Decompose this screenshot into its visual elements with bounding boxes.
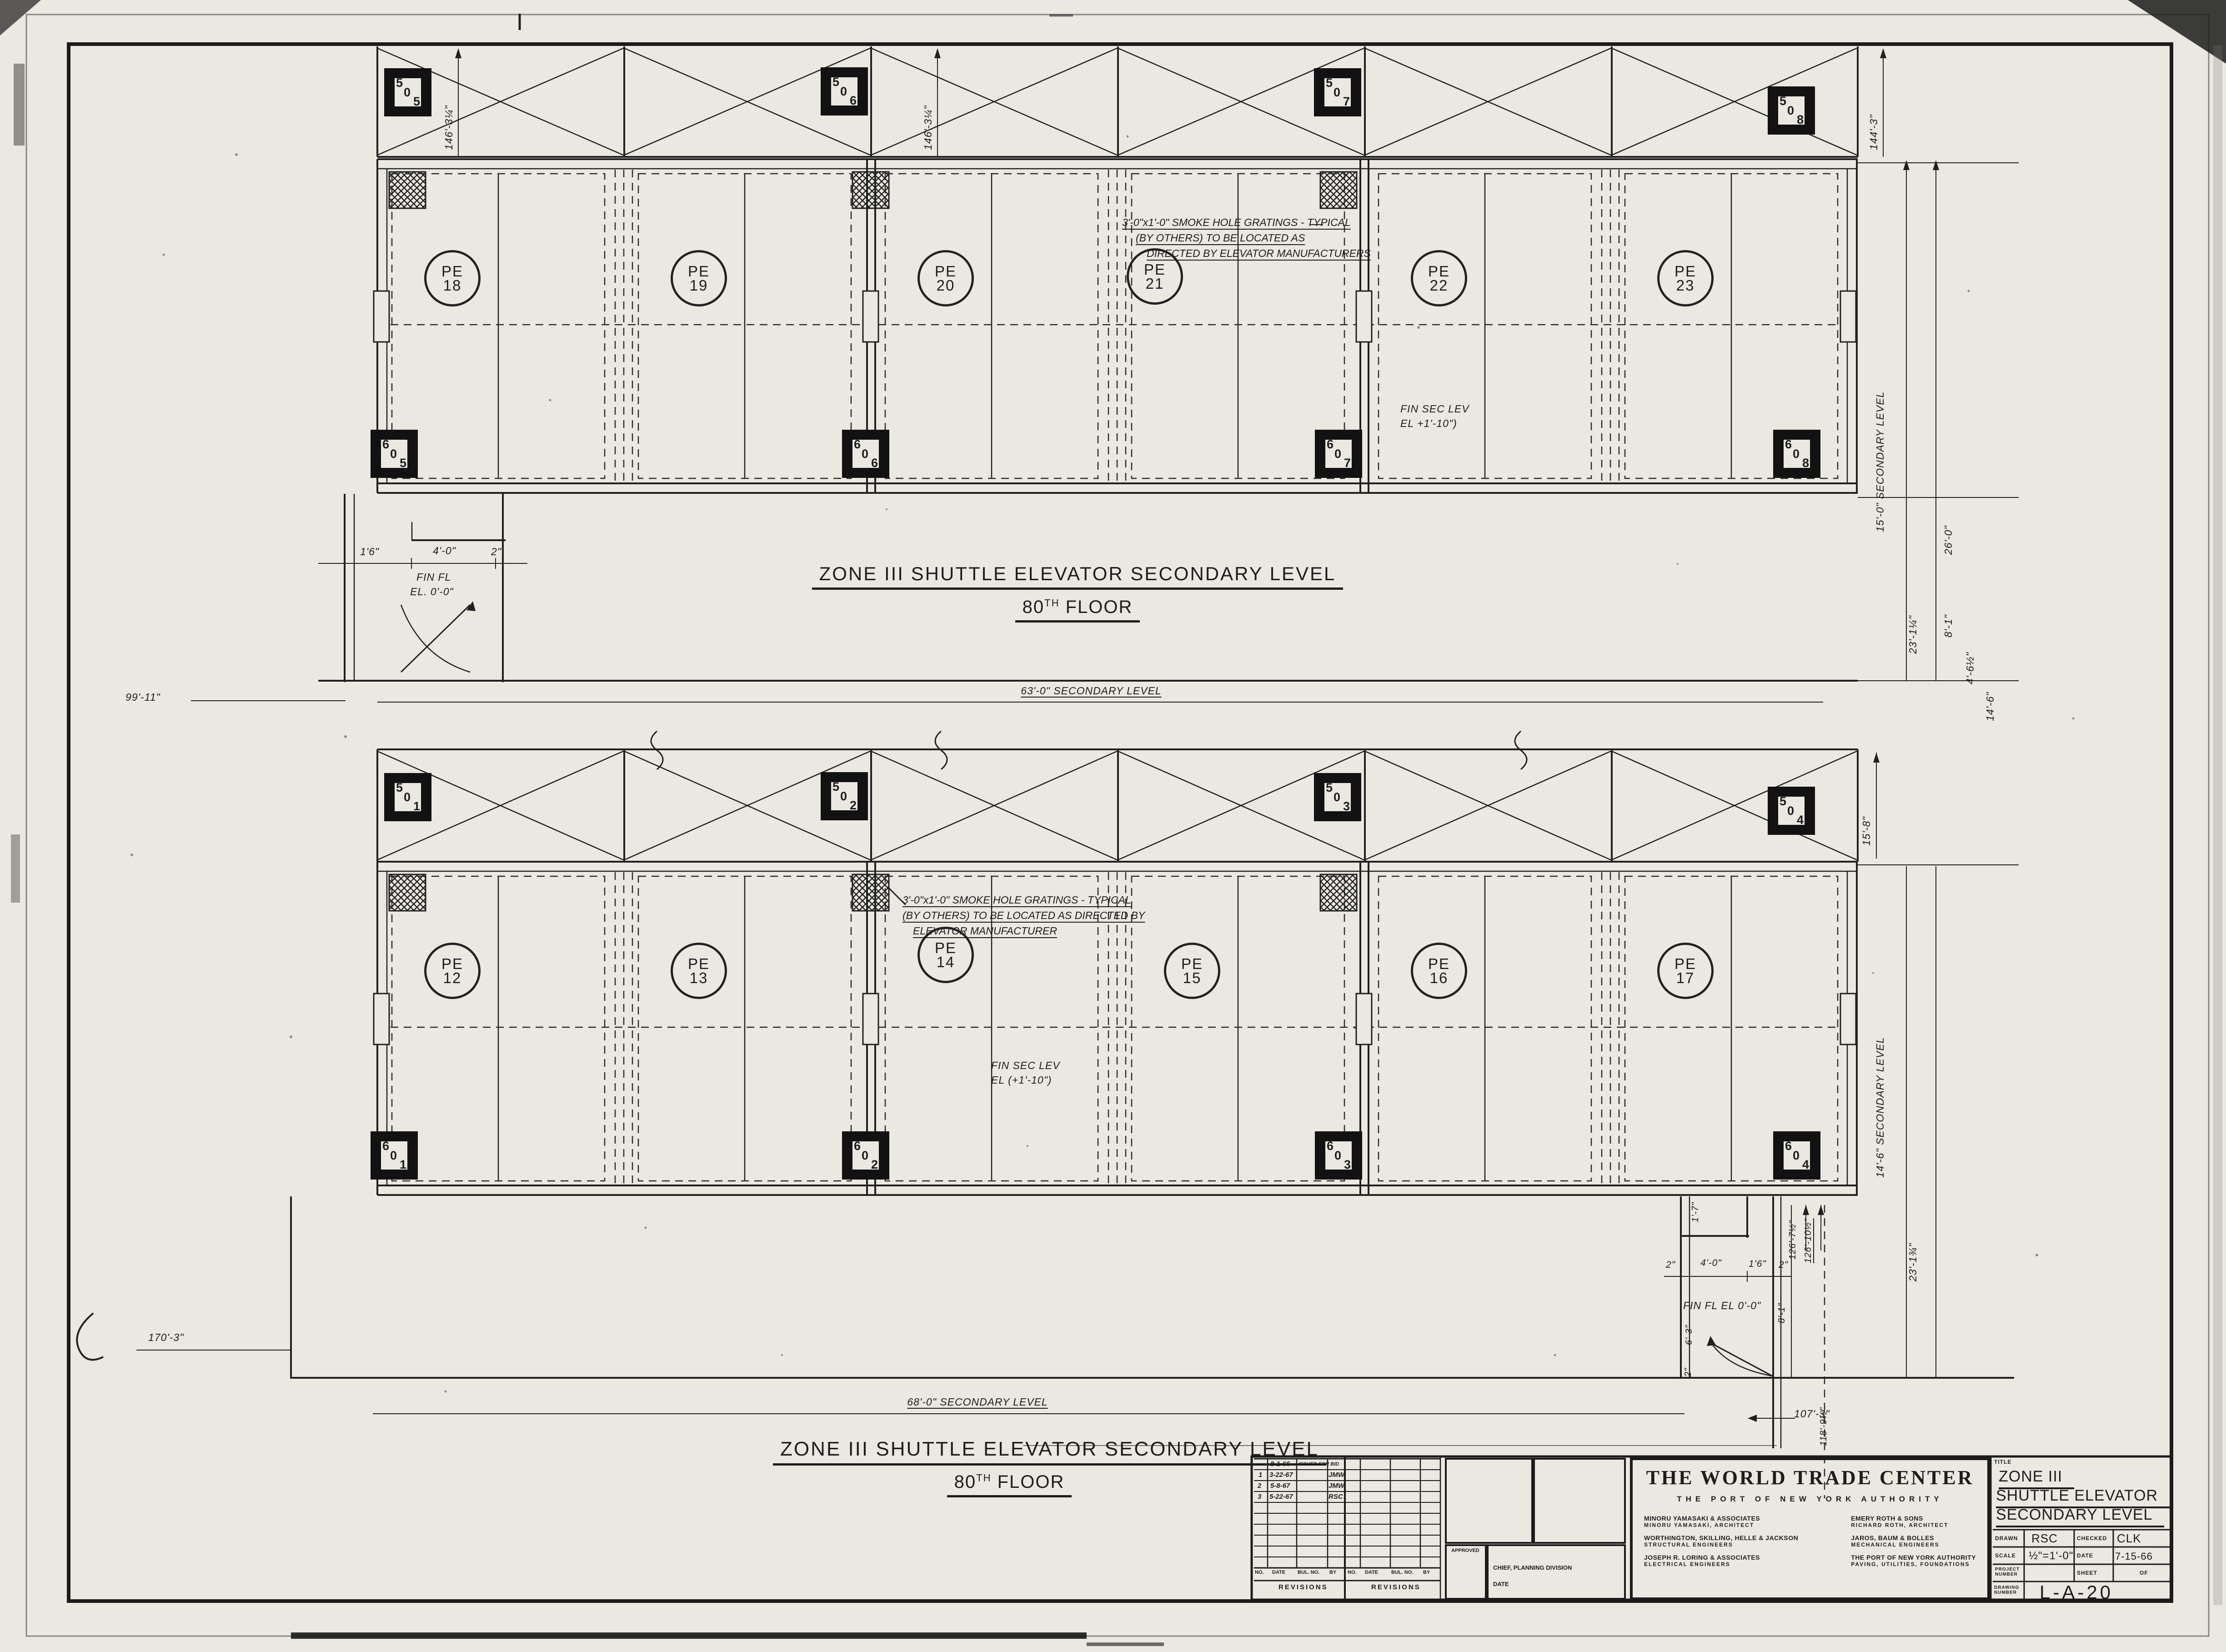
door-tag-505: 505 — [384, 68, 431, 116]
revision-by: RSC — [1329, 1493, 1343, 1501]
plan-floor-text: 80TH FLOOR — [1015, 597, 1140, 623]
revision-col-header: BY — [1329, 1570, 1336, 1575]
dim-right: 26'-0" — [1941, 525, 1955, 555]
door-tag-606: 606 — [842, 430, 889, 478]
stair-dim: 2" — [491, 546, 501, 558]
door-tag-506: 506 — [821, 67, 868, 115]
door-tag-number: 602 — [852, 1141, 879, 1170]
dim-band-2: 146'-3¼" — [921, 105, 935, 150]
door-tag-number: 603 — [1325, 1141, 1352, 1170]
project-number-label: PROJECT NUMBER — [1995, 1567, 2024, 1577]
smoke-note-line: ELEVATOR MANUFACTURER — [913, 925, 1057, 937]
project-name: THE WORLD TRADE CENTER — [1631, 1466, 1989, 1489]
revision-col-header: BY — [1423, 1570, 1430, 1575]
elevator-label-pe-19: PE19 — [671, 250, 727, 306]
door-tag-number: 605 — [381, 440, 407, 468]
firm-entry: MINORU YAMASAKI & ASSOCIATESMINORU YAMAS… — [1644, 1515, 1798, 1528]
fin-sec-lev-label: FIN SEC LEV — [1400, 403, 1469, 415]
revision-date: 3-22-67 — [1269, 1471, 1293, 1479]
door-tag-602: 602 — [842, 1131, 889, 1180]
firm-entry: JAROS, BAUM & BOLLESMECHANICAL ENGINEERS — [1851, 1534, 1976, 1548]
stair-dim-right: 126'-10½" — [1801, 1218, 1815, 1263]
stair-dim-v: 2" — [1681, 1368, 1695, 1377]
door-tag-number: 508 — [1778, 96, 1805, 125]
door-tag-number: 504 — [1778, 797, 1805, 825]
dim-left: 170'-3" — [148, 1331, 184, 1344]
sheet-title: ZONE III SHUTTLE ELEVATOR SECONDARY LEVE… — [773, 1438, 1246, 1497]
stair-dim: 4'-0" — [1700, 1258, 1722, 1269]
fin-fl-label: EL. 0'-0" — [410, 586, 454, 598]
dim-band-3: 144'-3" — [1867, 115, 1880, 150]
dim-right: 23'-1¾" — [1906, 1243, 1920, 1281]
smoke-note-line: DIRECTED BY ELEVATOR MANUFACTURERS — [1147, 247, 1371, 260]
date-label: DATE — [2077, 1552, 2093, 1559]
revision-col-header: BUL. NO. — [1391, 1570, 1413, 1575]
revision-col-header: BUL. NO. — [1298, 1570, 1319, 1575]
door-tag-504: 504 — [1768, 787, 1815, 835]
revision-date: 5-22-67 — [1269, 1493, 1293, 1501]
title-label: TITLE — [1994, 1459, 2011, 1465]
elevator-label-pe-13: PE13 — [671, 943, 727, 999]
checked-label: CHECKED — [2077, 1535, 2107, 1542]
date-value: 7-15-66 — [2115, 1551, 2153, 1562]
dim-right: 15'-0" SECONDARY LEVEL — [1873, 392, 1887, 532]
stair-dim-right: 8'-1" — [1775, 1303, 1789, 1323]
door-tag-number: 505 — [395, 78, 421, 106]
door-tag-607: 607 — [1315, 430, 1362, 478]
firm-entry: THE PORT OF NEW YORK AUTHORITYPAVING, UT… — [1851, 1554, 1976, 1567]
revision-col-header: DATE — [1365, 1570, 1378, 1575]
checked-value: CLK — [2117, 1531, 2141, 1546]
revision-col-header: DATE — [1272, 1570, 1285, 1575]
door-tag-605: 605 — [371, 430, 418, 478]
fin-sec-lev-label: EL (+1'-10") — [991, 1074, 1052, 1086]
dim-band-bottom: 15'-8" — [1860, 816, 1873, 846]
door-tag-number: 507 — [1324, 78, 1351, 106]
revision-issue-desc: ISSUED FOR BID — [1298, 1461, 1339, 1467]
elevator-label-pe-12: PE12 — [424, 943, 481, 999]
drawing-title-line: ZONE III — [1999, 1468, 2074, 1489]
sheet-label: SHEET — [2077, 1570, 2097, 1576]
door-tag-number: 608 — [1784, 440, 1810, 468]
elevator-label-pe-16: PE16 — [1411, 943, 1467, 999]
firm-entry: WORTHINGTON, SKILLING, HELLE & JACKSONST… — [1644, 1534, 1798, 1548]
door-tag-502: 502 — [821, 772, 868, 820]
architect-block: THE WORLD TRADE CENTER THE PORT OF NEW Y… — [1631, 1459, 1989, 1599]
sheet-of-label: OF — [2140, 1570, 2148, 1576]
revision-col-header: NO. — [1255, 1570, 1264, 1575]
dim-right: 4'-6½" — [1963, 652, 1977, 684]
consultant-firms: MINORU YAMASAKI & ASSOCIATESMINORU YAMAS… — [1631, 1515, 1989, 1573]
stair-dim: 1'6" — [1749, 1259, 1766, 1270]
door-tag-number: 607 — [1325, 440, 1352, 468]
door-tag-603: 603 — [1315, 1131, 1362, 1180]
dim-right: 14'-6" — [1983, 692, 1997, 721]
revision-by: JMW — [1329, 1482, 1344, 1490]
owner-name: THE PORT OF NEW YORK AUTHORITY — [1631, 1495, 1989, 1504]
plan-title-text: ZONE III SHUTTLE ELEVATOR SECONDARY LEVE… — [812, 563, 1344, 590]
stair-dim: 2" — [1779, 1260, 1788, 1270]
door-tag-number: 506 — [831, 77, 857, 105]
drawing-title-line: SHUTTLE ELEVATOR — [1996, 1487, 2170, 1508]
fin-fl-label: FIN FL EL 0'-0" — [1683, 1300, 1761, 1312]
firm-entry: EMERY ROTH & SONSRICHARD ROTH, ARCHITECT — [1851, 1515, 1976, 1528]
dim-right: 8'-1" — [1941, 614, 1955, 638]
dim-secondary-level: 68'-0" SECONDARY LEVEL — [750, 1396, 1205, 1408]
door-tag-number: 501 — [395, 783, 421, 811]
revisions-label: REVISIONS — [1278, 1583, 1328, 1591]
drawing-sheet: 505 506 507 508 605 606 607 608 PE18 PE1… — [0, 0, 2226, 1652]
fin-sec-lev-label: FIN SEC LEV — [991, 1059, 1060, 1072]
dim-left: 99'-11" — [125, 691, 160, 703]
chief-planning-label: CHIEF, PLANNING DIVISION — [1493, 1564, 1572, 1571]
approval-date-label: DATE — [1493, 1581, 1509, 1587]
smoke-note-line: (BY OTHERS) TO BE LOCATED AS — [1136, 232, 1305, 244]
door-tag-604: 604 — [1773, 1131, 1820, 1180]
fin-sec-lev-label: EL +1'-10") — [1400, 417, 1457, 430]
elevator-label-pe-23: PE23 — [1657, 250, 1714, 306]
scale-label: SCALE — [1995, 1552, 2016, 1559]
fin-fl-label: FIN FL — [416, 571, 451, 583]
smoke-note-line: 3'-0"x1'-0" SMOKE HOLE GRATINGS - TYPICA… — [1122, 216, 1351, 229]
elevator-label-pe-18: PE18 — [424, 250, 481, 306]
door-tag-507: 507 — [1314, 68, 1361, 116]
approved-label: APPROVED — [1451, 1548, 1479, 1553]
drawn-value: RSC — [2031, 1531, 2058, 1546]
sheet-title-text: ZONE III SHUTTLE ELEVATOR SECONDARY LEVE… — [773, 1438, 1326, 1466]
stair-dim: 1'6" — [360, 546, 379, 558]
door-tag-608: 608 — [1773, 430, 1820, 478]
dim-band-1: 146'-3¼" — [442, 105, 456, 150]
elevator-label-pe-15: PE15 — [1164, 943, 1220, 999]
plan-top-title: ZONE III SHUTTLE ELEVATOR SECONDARY LEVE… — [727, 563, 1428, 623]
stair-dim: 2" — [1666, 1260, 1675, 1270]
drawing-number-value: L-A-20 — [2040, 1582, 2113, 1603]
elevator-label-pe-22: PE22 — [1411, 250, 1467, 306]
revision-no: 1 — [1258, 1471, 1262, 1479]
door-tag-number: 502 — [831, 782, 857, 810]
stair-dim-v: 1'-7" — [1689, 1202, 1702, 1222]
door-tag-503: 503 — [1314, 773, 1361, 821]
door-tag-number: 503 — [1324, 783, 1351, 811]
revision-no: 3 — [1258, 1493, 1261, 1501]
drawn-label: DRAWN — [1995, 1535, 2018, 1542]
scale-value: ½"=1'-0" — [2029, 1550, 2073, 1562]
revision-col-header: NO. — [1348, 1570, 1357, 1575]
elevator-label-pe-17: PE17 — [1657, 943, 1714, 999]
stair-dim-right: 107'-3" — [1794, 1408, 1830, 1420]
drawing-title-line: SECONDARY LEVEL — [1996, 1506, 2164, 1527]
door-tag-number: 604 — [1784, 1141, 1810, 1170]
dim-secondary-level: 63'-0" SECONDARY LEVEL — [864, 685, 1319, 697]
door-tag-number: 601 — [381, 1141, 407, 1170]
revision-by: JMW — [1329, 1471, 1344, 1479]
smoke-note-line: (BY OTHERS) TO BE LOCATED AS DIRECTED BY — [902, 909, 1145, 922]
revision-no: 2 — [1258, 1482, 1261, 1490]
stair-dim-right: 126'-7½" — [1786, 1220, 1800, 1260]
revision-issue-date: 8-1-66 — [1270, 1460, 1290, 1468]
smoke-note-line: 3'-0"x1'-0" SMOKE HOLE GRATINGS - TYPICA… — [902, 894, 1131, 906]
stair-dim-v: 6'-3" — [1682, 1325, 1696, 1345]
door-tag-number: 606 — [852, 440, 879, 468]
stair-dim: 4'-0" — [433, 545, 456, 557]
door-tag-508: 508 — [1768, 86, 1815, 135]
revision-date: 5-8-67 — [1270, 1482, 1290, 1490]
sheet-floor-text: 80TH FLOOR — [947, 1472, 1072, 1497]
firm-entry: JOSEPH R. LORING & ASSOCIATESELECTRICAL … — [1644, 1554, 1798, 1567]
dim-right: 14'-6" SECONDARY LEVEL — [1873, 1037, 1887, 1178]
door-tag-501: 501 — [384, 773, 431, 821]
elevator-label-pe-20: PE20 — [917, 250, 974, 306]
revisions-label: REVISIONS — [1371, 1583, 1421, 1591]
drawing-number-label: DRAWING NUMBER — [1994, 1585, 2026, 1595]
door-tag-601: 601 — [371, 1131, 418, 1180]
dim-right: 23'-1¼" — [1906, 615, 1920, 654]
